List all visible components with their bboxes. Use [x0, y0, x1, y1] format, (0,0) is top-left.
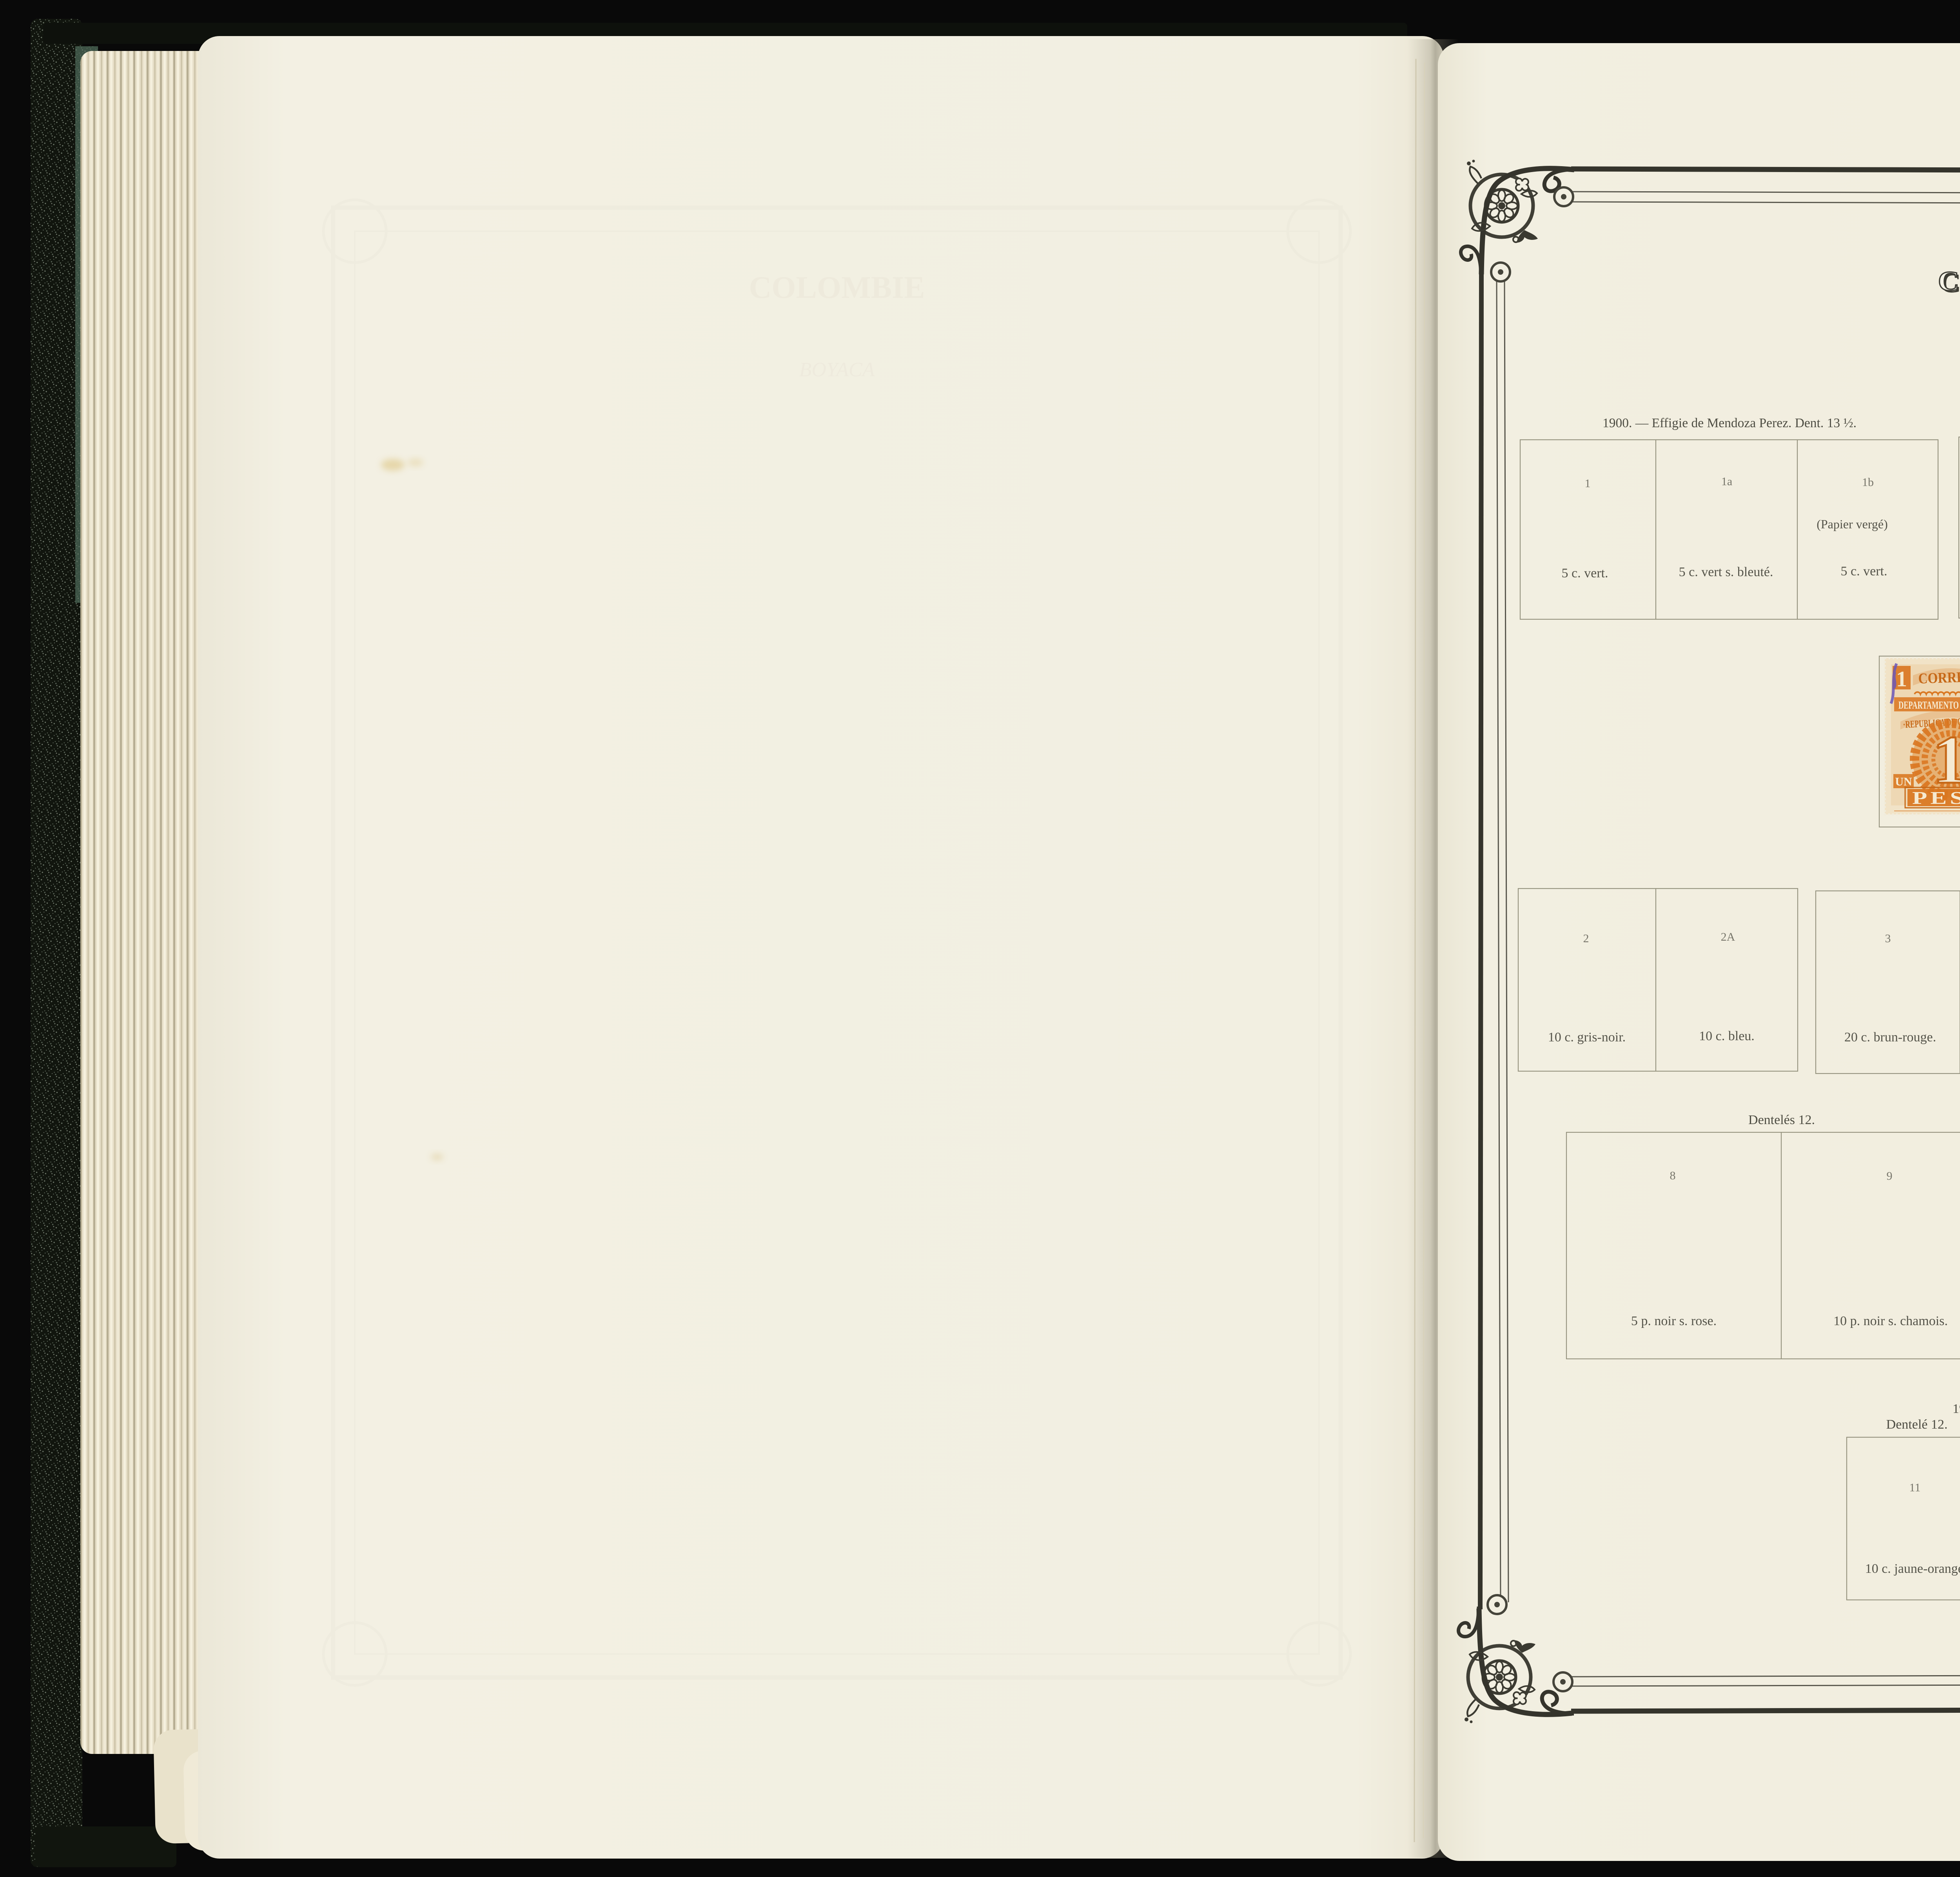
svg-text:COLOMBIE: COLOMBIE	[749, 270, 925, 305]
svg-text:5 c. vert.: 5 c. vert.	[1841, 564, 1887, 579]
svg-text:1904. — Statue de Bolivar.: 1904. — Statue de Bolivar.	[1953, 1402, 1960, 1416]
svg-text:10 c. jaune-orange.: 10 c. jaune-orange.	[1865, 1561, 1960, 1576]
svg-text:Dentelé 12.: Dentelé 12.	[1886, 1417, 1948, 1432]
svg-text:10 p. noir s. chamois.: 10 p. noir s. chamois.	[1833, 1314, 1948, 1328]
svg-text:1: 1	[1933, 722, 1960, 798]
svg-text:5 c. vert s. bleuté.: 5 c. vert s. bleuté.	[1679, 565, 1773, 579]
svg-text:5 c. vert.: 5 c. vert.	[1562, 566, 1608, 580]
svg-text:3: 3	[1885, 932, 1891, 945]
svg-text:9: 9	[1887, 1170, 1893, 1182]
svg-text:BOYACA: BOYACA	[799, 359, 875, 381]
svg-text:10 c. gris-noir.: 10 c. gris-noir.	[1548, 1030, 1626, 1045]
svg-text:2A: 2A	[1721, 930, 1735, 943]
svg-text:11: 11	[1909, 1481, 1921, 1494]
svg-text:2: 2	[1583, 932, 1589, 945]
svg-text:1a: 1a	[1721, 475, 1732, 488]
svg-text:DEPARTAMENTO DE BOYACA: DEPARTAMENTO DE BOYACA	[1898, 699, 1960, 711]
svg-text:1b: 1b	[1862, 476, 1874, 489]
svg-text:1: 1	[1896, 667, 1907, 691]
svg-text:CORREOS: CORREOS	[1918, 668, 1960, 687]
svg-text:(Papier vergé): (Papier vergé)	[1817, 517, 1888, 531]
svg-text:UN: UN	[1895, 775, 1912, 788]
svg-text:1: 1	[1585, 477, 1591, 490]
svg-text:PESO: PESO	[1912, 788, 1960, 808]
svg-text:8: 8	[1670, 1169, 1676, 1182]
svg-text:10 c. bleu.: 10 c. bleu.	[1699, 1029, 1755, 1043]
svg-text:COLOMBIE: COLOMBIE	[1938, 265, 1960, 296]
svg-text:20 c. brun-rouge.: 20 c. brun-rouge.	[1844, 1030, 1936, 1045]
svg-text:5 p. noir s. rose.: 5 p. noir s. rose.	[1631, 1314, 1717, 1328]
svg-text:Dentelés 12.: Dentelés 12.	[1748, 1113, 1815, 1127]
svg-text:1900. — Effigie de Mendoza Per: 1900. — Effigie de Mendoza Perez. Dent. …	[1602, 416, 1857, 430]
